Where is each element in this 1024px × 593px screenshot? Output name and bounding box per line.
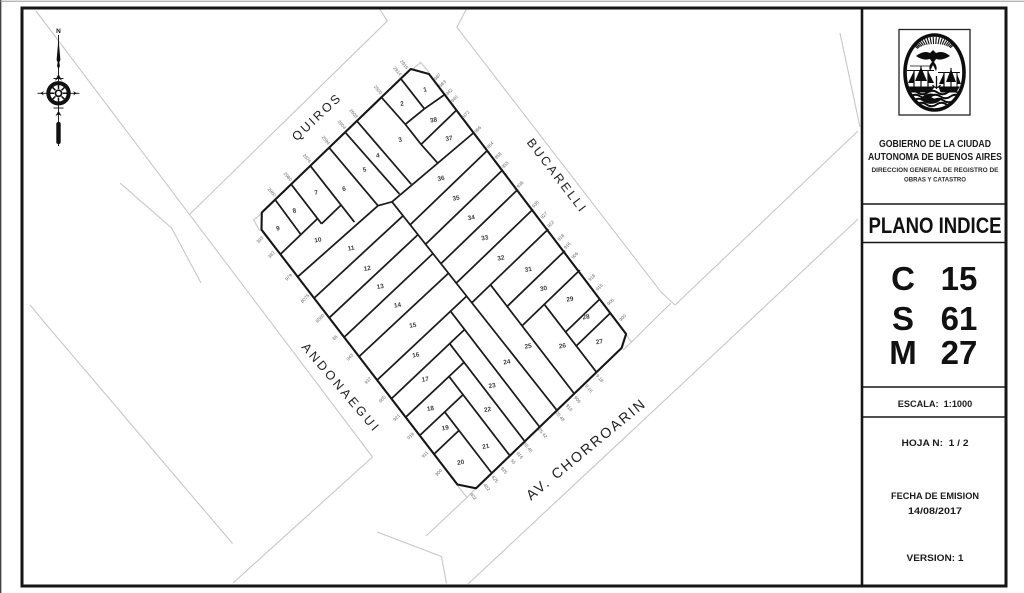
svg-text:VERSION: 1: VERSION: 1 [907, 553, 964, 563]
svg-text:FECHA DE EMISION: FECHA DE EMISION [891, 491, 979, 501]
svg-text:S: S [892, 300, 914, 337]
svg-text:OBRAS Y CATASTRO: OBRAS Y CATASTRO [904, 177, 966, 184]
svg-text:C: C [891, 260, 915, 297]
svg-text:AUTONOMA DE BUENOS AIRES: AUTONOMA DE BUENOS AIRES [868, 152, 1002, 163]
svg-text:GOBIERNO DE LA CIUDAD: GOBIERNO DE LA CIUDAD [879, 139, 991, 150]
svg-text:N: N [56, 28, 61, 35]
svg-text:PLANO INDICE: PLANO INDICE [869, 213, 1002, 238]
svg-text:61: 61 [941, 300, 978, 337]
svg-text:14/08/2017: 14/08/2017 [908, 506, 962, 516]
svg-text:M: M [889, 334, 917, 371]
svg-text:DIRECCION GENERAL DE REGISTRO: DIRECCION GENERAL DE REGISTRO DE [872, 167, 1000, 174]
svg-text:ESCALA: 1:1000: ESCALA: 1:1000 [898, 399, 973, 409]
svg-text:27: 27 [941, 334, 978, 371]
svg-text:HOJA N: 1 / 2: HOJA N: 1 / 2 [902, 438, 969, 448]
svg-text:15: 15 [941, 260, 978, 297]
